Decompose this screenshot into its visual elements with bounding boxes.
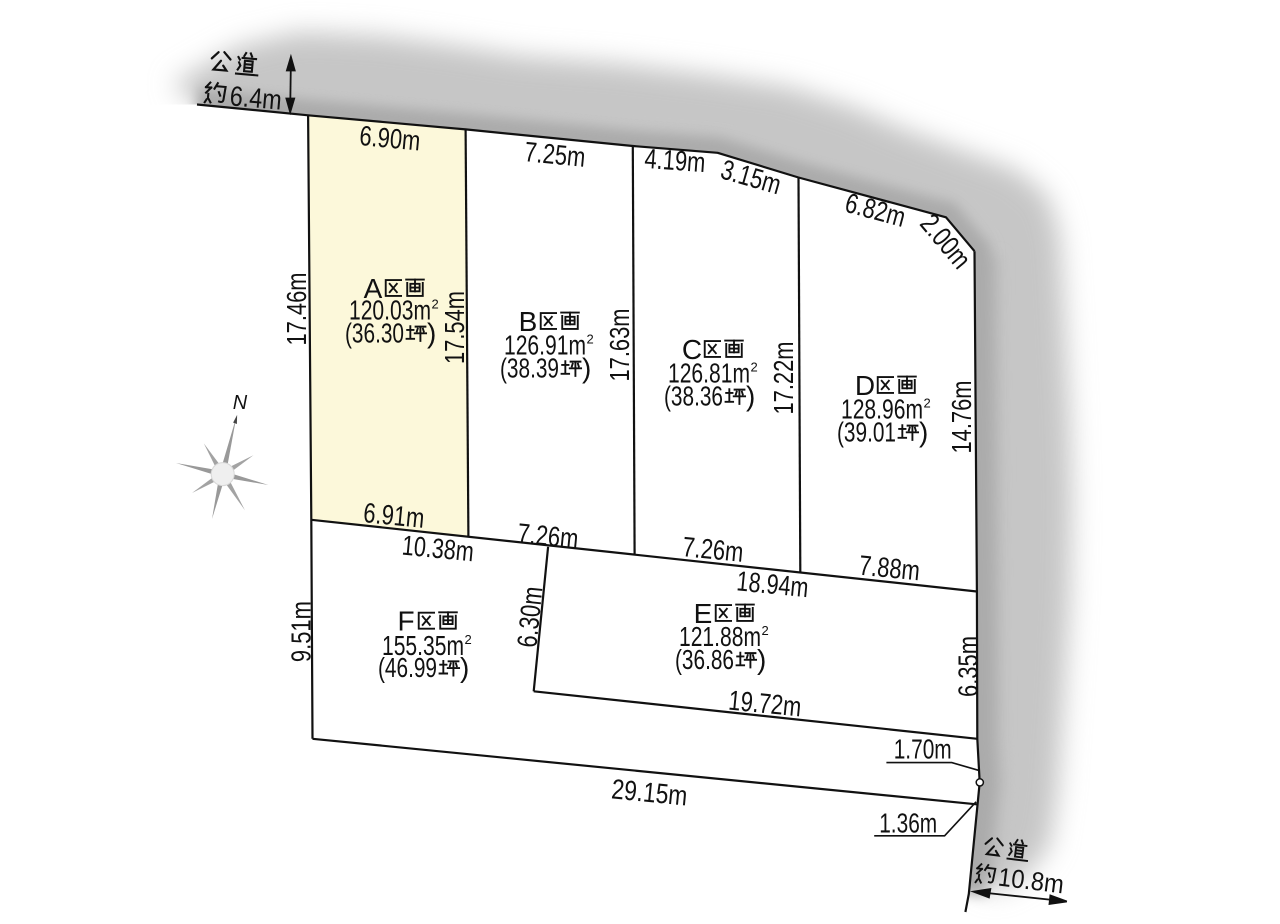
svg-text:6.35m: 6.35m: [953, 636, 984, 697]
svg-text:): ): [919, 417, 928, 448]
svg-text:): ): [746, 381, 755, 412]
svg-text:): ): [427, 318, 436, 349]
svg-text:4.19m: 4.19m: [644, 143, 707, 178]
svg-text:7.88m: 7.88m: [858, 550, 922, 587]
svg-text:9.51m: 9.51m: [286, 601, 317, 662]
svg-text:10.8m: 10.8m: [996, 862, 1065, 900]
svg-text:6.91m: 6.91m: [362, 497, 426, 534]
svg-text:1.36m: 1.36m: [879, 807, 937, 838]
svg-text:2: 2: [751, 360, 758, 375]
svg-text:(36.86: (36.86: [675, 644, 734, 675]
svg-text:6.90m: 6.90m: [358, 120, 422, 157]
svg-text:17.46m: 17.46m: [281, 273, 312, 346]
svg-text:14.76m: 14.76m: [946, 381, 977, 454]
svg-text:17.54m: 17.54m: [439, 291, 470, 364]
svg-text:): ): [757, 644, 766, 675]
svg-text:2: 2: [924, 396, 931, 411]
svg-text:6.4m: 6.4m: [229, 80, 284, 115]
svg-text:2: 2: [587, 332, 594, 347]
svg-text:7.26m: 7.26m: [681, 531, 745, 568]
svg-text:): ): [460, 652, 469, 683]
svg-text:7.25m: 7.25m: [523, 136, 587, 173]
svg-text:7.26m: 7.26m: [516, 518, 580, 555]
svg-text:N: N: [233, 392, 248, 414]
svg-text:2: 2: [762, 623, 769, 638]
svg-text:(36.30: (36.30: [345, 318, 404, 349]
svg-text:(46.99: (46.99: [378, 652, 437, 683]
svg-text:(39.01: (39.01: [837, 417, 896, 448]
svg-text:1.70m: 1.70m: [894, 733, 952, 764]
svg-text:(38.39: (38.39: [500, 353, 559, 384]
svg-text:): ): [582, 353, 591, 384]
svg-text:2: 2: [432, 297, 439, 312]
svg-text:17.22m: 17.22m: [768, 342, 799, 415]
svg-text:2: 2: [465, 632, 472, 647]
svg-text:17.63m: 17.63m: [604, 309, 635, 382]
svg-text:6.30m: 6.30m: [511, 585, 548, 649]
svg-text:(38.36: (38.36: [664, 381, 723, 412]
